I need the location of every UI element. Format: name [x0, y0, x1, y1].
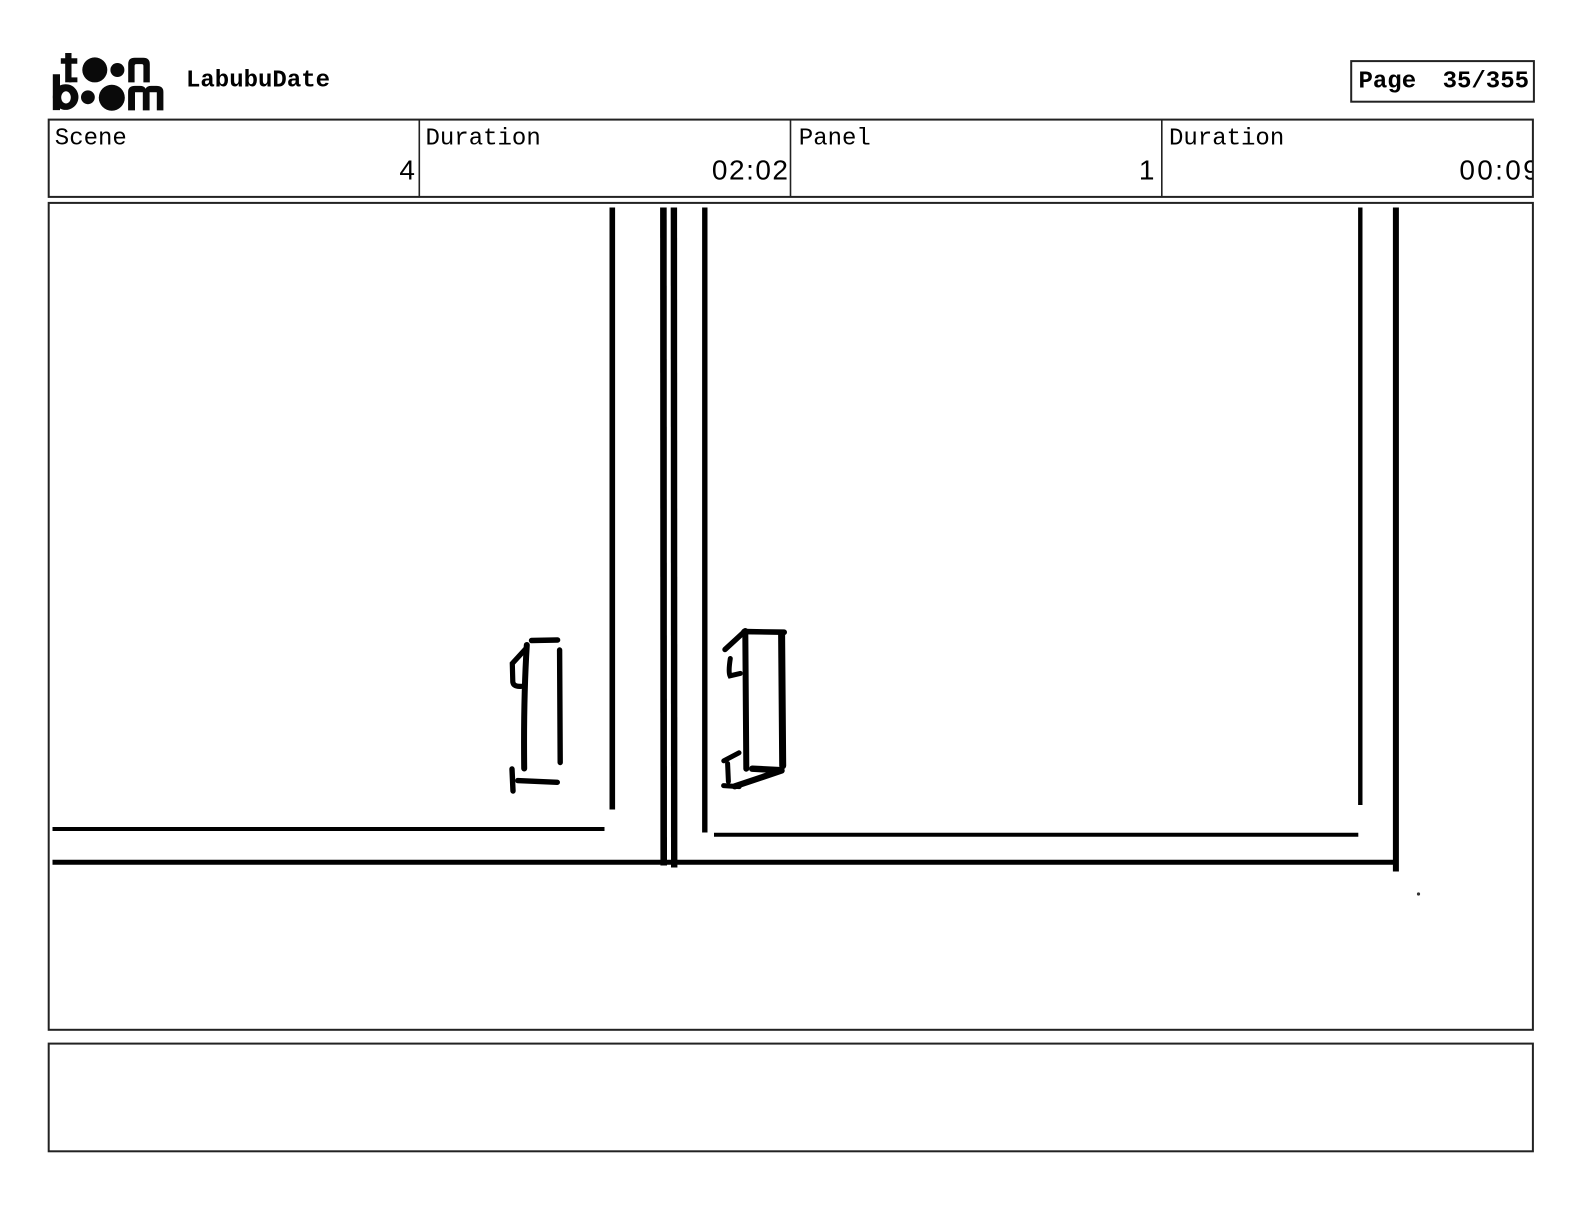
svg-text:1: 1 [1139, 155, 1155, 186]
svg-text:Duration: Duration [1169, 126, 1284, 153]
svg-text:00:09: 00:09 [1459, 155, 1541, 186]
svg-text:4: 4 [399, 155, 415, 186]
svg-text:LabubuDate: LabubuDate [186, 68, 330, 95]
svg-text:Scene: Scene [55, 126, 127, 153]
svg-text:02:02: 02:02 [712, 155, 790, 186]
svg-text:35/355: 35/355 [1443, 69, 1529, 96]
svg-text:Panel: Panel [799, 126, 871, 153]
svg-text:Page: Page [1359, 69, 1417, 96]
svg-text:Duration: Duration [426, 126, 541, 153]
